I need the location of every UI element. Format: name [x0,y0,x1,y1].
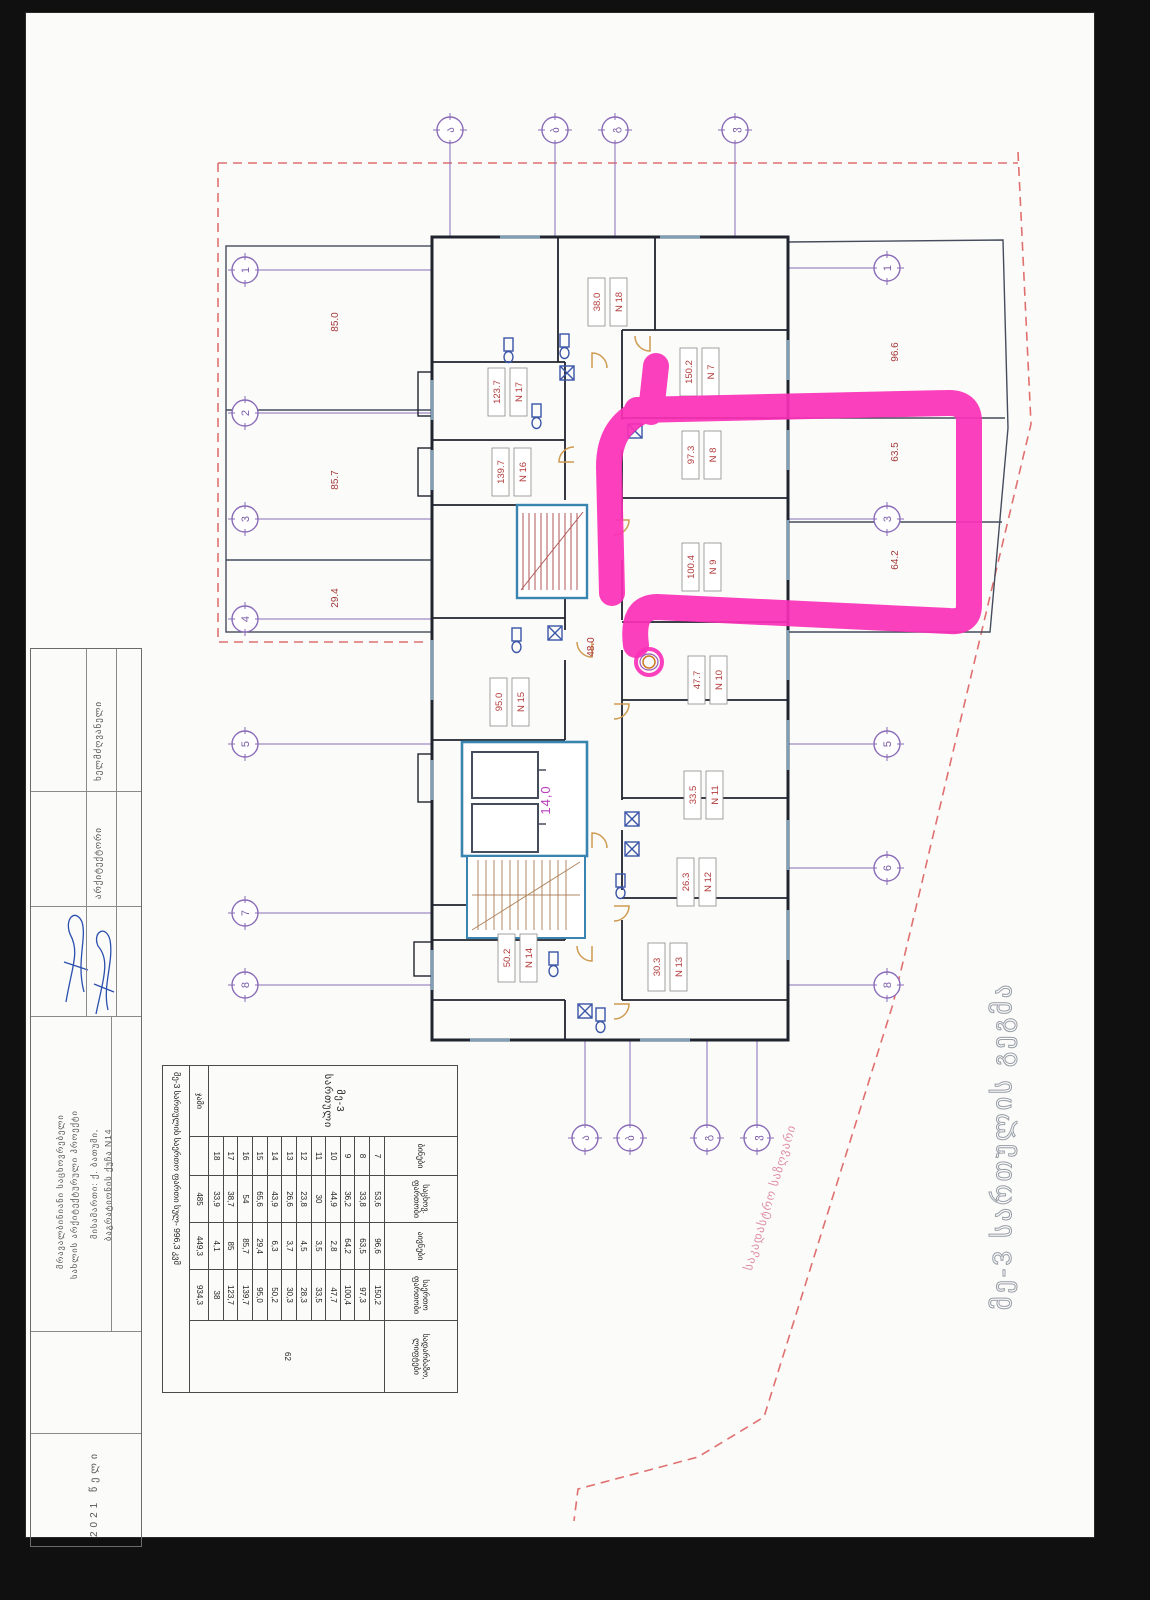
grid-bubble: ვ [740,1121,774,1155]
drawing-title-vertical: მე-3 სართულის გეგმა [985,998,1021,1310]
shaft-x-icon [625,842,639,856]
grid-bubble: 6 [870,851,904,885]
grid-bubble: 8 [228,968,262,1002]
year-label: 2021 წელი [89,1450,100,1537]
apartment-id-text: N 8 [708,448,719,463]
table-value-cell: 36,2 [340,1176,355,1223]
toilet-icon [512,628,521,653]
stair-core-lower [467,856,585,938]
table-value-cell: 6,3 [267,1223,282,1270]
apartment-id-text: N 15 [516,692,527,712]
table-value-cell: 2,8 [326,1223,341,1270]
table-value-cell: 16 [238,1137,253,1176]
apartment-label: 100.4N 9 [682,543,721,591]
table-col-header: სადარბაზო, ლიფტები [384,1321,457,1393]
table-value-cell: 54 [238,1176,253,1223]
grid-bubble-label: 6 [882,865,894,871]
table-value-cell: 3,5 [311,1223,326,1270]
grid-bubble-label: ვ [752,1135,764,1141]
grid-bubble-label: გ [702,1135,714,1141]
common-area-cell: 62 [190,1321,385,1393]
toilet-icon [560,334,569,359]
table-value-cell: 4,5 [296,1223,311,1270]
project-line-2: სახლის არქიტექტურული პროექტი [69,1110,80,1279]
grid-bubble-label: 1 [882,265,894,271]
toilet-icon [532,404,541,429]
grid-bubble: 2 [228,396,262,430]
title-block: ხელმძღვანელი არქიტექტორი მრავალბინიანი ს… [30,648,142,1547]
table-value-cell: 30,3 [282,1270,297,1321]
apartment-label: 47.7N 10 [688,656,727,704]
apartment-label: 139.7N 16 [492,448,531,496]
apartment-area-text: 123.7 [492,380,503,404]
table-value-cell: 3,7 [282,1223,297,1270]
grid-bubble-label: 3 [240,516,252,522]
shaft-x-icon [560,366,574,380]
table-value-cell: 100,4 [340,1270,355,1321]
grid-bubble: ა [433,113,467,147]
totals-label-cell: ჯამი [190,1066,209,1137]
apartment-id-text: N 7 [706,365,717,380]
address-line-2: ბაგრატიონის ქუჩა N14 [103,1128,114,1241]
table-value-cell: 7 [370,1137,385,1176]
drawing-sheet: 48.0 14,0 150.2N 797.3N 8100.4N 947.7N 1… [25,12,1095,1538]
table-value-cell: 123,7 [223,1270,238,1321]
apartment-label: 33.5N 11 [684,771,723,819]
table-value-cell: 53,6 [370,1176,385,1223]
apartment-label: 123.7N 17 [488,368,527,416]
table-value-cell: 26,6 [282,1176,297,1223]
table-value-cell: 150,2 [370,1270,385,1321]
stair-core-upper [517,505,587,598]
apartment-id-text: N 13 [674,957,685,977]
grid-bubble-label: 7 [240,910,252,916]
table-col-header: აივნები [384,1223,457,1270]
apartment-area-text: 50.2 [502,949,513,968]
table-value-cell: 85,7 [238,1223,253,1270]
table-value-cell: 4,1 [209,1223,224,1270]
grid-bubble: 7 [228,896,262,930]
lobby-area-label: 14,0 [538,785,553,814]
table-value-cell: 17 [223,1137,238,1176]
table-value-cell: 23,8 [296,1176,311,1223]
titleblock-role-1: ხელმძღვანელი [93,701,104,781]
apartment-id-text: N 11 [710,785,721,804]
grid-bubble: 3 [870,502,904,536]
table-value-cell: 47,7 [326,1270,341,1321]
apartment-area-text: 100.4 [686,555,697,579]
apartment-area-text: 139.7 [496,460,507,484]
totals-value-cell: 934,3 [190,1270,209,1321]
table-note-cell: მე-3 სართულის საერთო ფართი სულ- 996,3 კვ… [163,1066,190,1393]
grid-bubble: ბ [613,1121,647,1155]
toilet-icon [616,874,625,899]
pink-left-bar [609,407,652,593]
apartment-label: 150.2N 7 [680,348,719,396]
apartment-area-text: 95.0 [494,693,505,712]
terrace-area-label: 63.5 [890,442,901,462]
apartment-label: 95.0N 15 [490,678,529,726]
table-value-cell: 14 [267,1137,282,1176]
apartment-id-text: N 14 [524,948,535,968]
project-line-1: მრავალბინიანი საცხოვრებელი [55,1114,66,1269]
table-value-cell: 33,5 [311,1270,326,1321]
toilet-icon [549,952,558,977]
terrace-area-label: 64.2 [890,550,901,570]
terrace-area-label: 85.0 [330,312,341,332]
table-value-cell: 63,5 [355,1223,370,1270]
apartment-id-text: N 12 [703,872,714,892]
pink-circle-annotation [636,649,662,675]
grid-bubble-label: 1 [240,267,252,273]
table-value-cell: 10 [326,1137,341,1176]
table-value-cell: 30 [311,1176,326,1223]
terrace-area-label: 96.6 [890,342,901,362]
table-value-cell: 11 [311,1137,326,1176]
grid-bubble-label: ა [580,1135,592,1141]
grid-bubble: 5 [228,727,262,761]
table-value-cell: 43,9 [267,1176,282,1223]
grid-bubble: ვ [718,113,752,147]
corridor-area-label: 48.0 [586,637,597,657]
grid-bubble: 1 [228,253,262,287]
apartment-area-text: 150.2 [684,360,695,384]
grid-bubble: 3 [228,502,262,536]
table-value-cell: 96,6 [370,1223,385,1270]
grid-bubble: 5 [870,727,904,761]
table-value-cell: 64,2 [340,1223,355,1270]
apartment-area-text: 30.3 [652,958,663,977]
apartment-id-text: N 16 [518,462,529,482]
table-value-cell: 44,9 [326,1176,341,1223]
table-value-cell: 33,8 [355,1176,370,1223]
grid-bubble-label: 2 [240,410,252,416]
totals-spacer-cell [190,1137,209,1176]
apartment-area-text: 26.3 [681,873,692,892]
grid-lines [259,144,873,1124]
apartment-id-text: N 17 [514,382,525,402]
apartment-area-text: 47.7 [692,671,703,690]
grid-bubble: გ [690,1121,724,1155]
table-col-header: საერთო ფართობი [384,1270,457,1321]
grid-bubble: ბ [538,113,572,147]
grid-bubble: ა [568,1121,602,1155]
grid-bubble: 8 [870,968,904,1002]
apartment-label: 38.0N 18 [588,278,627,326]
grid-bubble-label: 5 [240,741,252,747]
table-value-cell: 15 [253,1137,268,1176]
floor-title-cell: მე-3 სართული [209,1066,458,1137]
elevator-core [462,742,587,856]
grid-bubble: 1 [870,251,904,285]
terrace-area-label: 85.7 [330,470,341,490]
table-value-cell: 38 [209,1270,224,1321]
table-value-cell: 139,7 [238,1270,253,1321]
grid-bubble: გ [598,113,632,147]
apartment-label: 97.3N 8 [682,431,721,479]
apartment-id-text: N 9 [708,560,719,575]
grid-bubble-label: 8 [882,982,894,988]
apartment-id-text: N 18 [614,292,625,312]
apartment-label: 30.3N 13 [648,943,687,991]
grid-bubble-label: ბ [625,1135,637,1141]
table-value-cell: 65,6 [253,1176,268,1223]
grid-bubble-label: 3 [882,516,894,522]
apartment-area-text: 38.0 [592,293,603,312]
titleblock-role-2: არქიტექტორი [93,827,104,899]
toilet-icon [504,338,513,363]
shaft-x-icon [578,1004,592,1018]
table-value-cell: 28,3 [296,1270,311,1321]
terrace-area-label: 29.4 [330,588,341,608]
grid-bubble-label: 8 [240,982,252,988]
apartment-label: 50.2N 14 [498,934,537,982]
table-value-cell: 38,7 [223,1176,238,1223]
grid-bubble: 4 [228,602,262,636]
table-value-cell: 18 [209,1137,224,1176]
shaft-x-icon [548,626,562,640]
area-summary-table: მე-3 სართულიბინებისაცხოვ. ფართობიაივნები… [162,1065,458,1392]
table-value-cell: 12 [296,1137,311,1176]
table-value-cell: 50,2 [267,1270,282,1321]
grid-bubble-label: ბ [550,127,562,133]
grid-bubble-label: 4 [240,616,252,622]
grid-bubble-label: გ [610,127,622,133]
table-value-cell: 97,3 [355,1270,370,1321]
table-value-cell: 85 [223,1223,238,1270]
apartment-area-text: 33.5 [688,786,699,805]
grid-bubble-label: 5 [882,741,894,747]
table-col-header: ბინები [384,1137,457,1176]
grid-bubble-label: ვ [730,127,742,133]
table-value-cell: 29,4 [253,1223,268,1270]
apartment-id-text: N 10 [714,670,725,690]
drawing-title-text: მე-3 სართულის გეგმა [987,982,1018,1310]
address-line-1: მისამართი: ქ. ბათუმი, [89,1129,100,1239]
apartment-area-text: 97.3 [686,446,697,465]
table-value-cell: 8 [355,1137,370,1176]
table-value-cell: 95,0 [253,1270,268,1321]
table-col-header: საცხოვ. ფართობი [384,1176,457,1223]
toilet-icon [596,1008,605,1033]
totals-value-cell: 485 [190,1176,209,1223]
grid-bubble-label: ა [445,127,457,133]
table-value-cell: 33,9 [209,1176,224,1223]
shaft-x-icon [625,812,639,826]
table-value-cell: 13 [282,1137,297,1176]
table-value-cell: 9 [340,1137,355,1176]
totals-value-cell: 449,3 [190,1223,209,1270]
